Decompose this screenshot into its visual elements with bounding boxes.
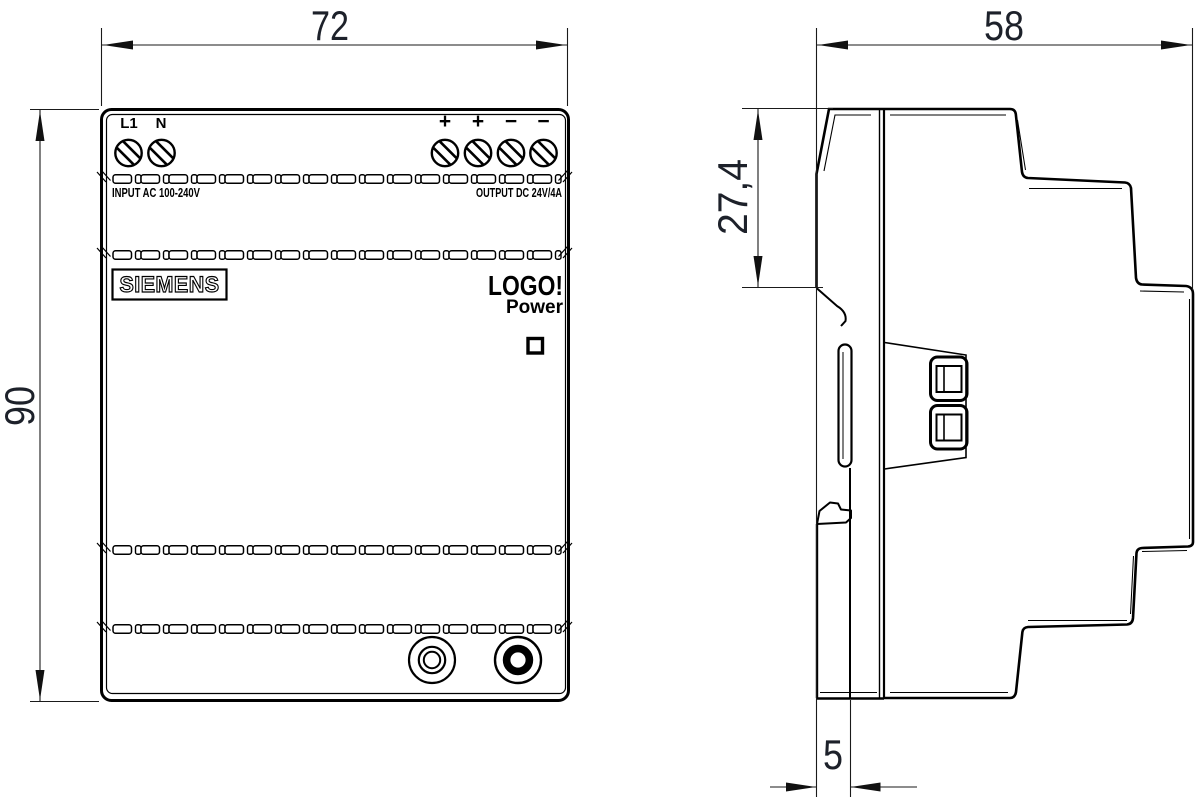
vent-slot <box>281 546 300 555</box>
socket-bore <box>507 649 530 672</box>
vent-slot-narrow <box>276 175 282 184</box>
vent-slot <box>449 251 468 260</box>
vent-slot-narrow <box>304 625 310 634</box>
potentiometer <box>409 637 455 683</box>
vent-slot <box>253 251 272 260</box>
screw-terminal-icon <box>148 140 174 166</box>
vent-slot <box>225 251 244 260</box>
din-rail-groove <box>839 345 852 467</box>
vent-slot-narrow <box>528 175 534 184</box>
vent-slot <box>421 625 440 634</box>
vent-slot-narrow <box>248 625 254 634</box>
siemens-logo: SIEMENS <box>113 270 227 300</box>
vent-slot-narrow <box>388 625 394 634</box>
side-view: 58 27,4 5 <box>709 2 1193 797</box>
output-rating-label: OUTPUT DC 24V/4A <box>476 186 562 200</box>
vent-slot-narrow <box>136 251 142 260</box>
terminal-label-n: N <box>156 115 167 132</box>
vent-slot-narrow <box>164 175 170 184</box>
vent-slot-narrow <box>472 546 478 555</box>
led-indicator <box>528 339 543 354</box>
vent-slot-narrow <box>332 625 338 634</box>
vent-slot-narrow <box>332 251 338 260</box>
vent-slot-narrow <box>192 546 198 555</box>
vent-slot-narrow <box>248 175 254 184</box>
vent-slot <box>169 175 188 184</box>
dim-side-depth <box>817 28 1193 797</box>
vent-slot-narrow <box>332 175 338 184</box>
vent-slot-narrow <box>164 251 170 260</box>
vent-slot-narrow <box>360 625 366 634</box>
vent-slot-narrow <box>136 546 142 555</box>
din-rail-latch <box>817 503 851 525</box>
vent-slot-narrow <box>500 625 506 634</box>
vent-slot <box>505 175 524 184</box>
vent-slot-narrow <box>360 175 366 184</box>
vent-slot-narrow <box>500 546 506 555</box>
vent-slot <box>141 175 160 184</box>
vent-slot-narrow <box>528 625 534 634</box>
vent-slot <box>309 175 328 184</box>
vent-slot-narrow <box>220 251 226 260</box>
vent-slot-narrow <box>276 251 282 260</box>
vent-slot <box>533 175 552 184</box>
vent-slot-narrow <box>164 546 170 555</box>
vent-slot <box>197 625 216 634</box>
vent-slot <box>365 251 384 260</box>
vent-slot <box>449 175 468 184</box>
vent-slot <box>281 175 300 184</box>
terminal-label-minus-2: − <box>537 110 549 133</box>
vent-slot <box>393 251 412 260</box>
vent-slot-narrow <box>220 625 226 634</box>
terminal-label-plus-2: + <box>472 110 484 133</box>
vent-slot-narrow <box>472 625 478 634</box>
vent-slot-narrow <box>276 625 282 634</box>
vent-slot <box>253 175 272 184</box>
vent-slot <box>365 175 384 184</box>
vent-slot <box>533 625 552 634</box>
front-body-inner-line <box>107 115 566 694</box>
vent-slot <box>337 175 356 184</box>
screw-terminals <box>115 140 556 166</box>
vent-slot <box>225 546 244 555</box>
vent-slot <box>505 625 524 634</box>
vent-slot <box>197 175 216 184</box>
socket-outer-ring <box>495 637 541 683</box>
vent-slot <box>253 546 272 555</box>
screw-terminal-icon <box>498 140 524 166</box>
screw-head <box>115 140 141 166</box>
vent-slot-narrow <box>192 625 198 634</box>
vent-slot <box>253 625 272 634</box>
vent-slot-narrow <box>220 546 226 555</box>
vent-slot-narrow <box>304 251 310 260</box>
vent-slot-narrow <box>388 251 394 260</box>
vent-slot <box>365 546 384 555</box>
vent-slot-narrow <box>248 251 254 260</box>
vent-slot <box>281 251 300 260</box>
vent-slot <box>309 625 328 634</box>
screw-terminal-icon <box>432 140 458 166</box>
vent-slot <box>281 625 300 634</box>
input-rating-label: INPUT AC 100-240V <box>112 186 200 200</box>
vent-slot-narrow <box>528 546 534 555</box>
dim-front-width-value: 72 <box>311 2 349 49</box>
vent-slot <box>197 251 216 260</box>
vent-slot-narrow <box>276 546 282 555</box>
vent-slot-narrow <box>248 546 254 555</box>
terminal-opening-1-inner <box>937 366 962 392</box>
vent-slot <box>169 546 188 555</box>
side-body-inner-lines <box>890 115 1190 693</box>
vent-slot-narrow <box>416 625 422 634</box>
dim-foot-depth <box>770 700 917 797</box>
vent-slot <box>365 625 384 634</box>
side-terminal-block <box>885 343 968 470</box>
vent-slot <box>141 625 160 634</box>
vent-slot-narrow <box>388 175 394 184</box>
din-rail-hook <box>817 288 846 326</box>
vent-slot-narrow <box>304 546 310 555</box>
dimension-drawing: L1 N + + − − INPUT AC 100-240V OUTPUT DC… <box>0 0 1200 800</box>
vent-slot-narrow <box>192 175 198 184</box>
vent-slot-narrow <box>444 175 450 184</box>
vent-slot-narrow <box>416 251 422 260</box>
terminal-opening-2-inner <box>937 415 962 441</box>
vent-slot <box>169 625 188 634</box>
dim-foot-depth-value: 5 <box>823 731 843 778</box>
product-line-label: Power <box>506 297 564 318</box>
screw-terminal-icon <box>465 140 491 166</box>
vent-slot <box>505 546 524 555</box>
dim-front-height-value: 90 <box>0 386 43 426</box>
vent-slot <box>477 546 496 555</box>
vent-slot-narrow <box>528 251 534 260</box>
vent-slot-narrow <box>192 251 198 260</box>
vent-slot-narrow <box>332 546 338 555</box>
dim-arrowhead <box>818 41 848 50</box>
din-flange-upper <box>817 109 885 288</box>
din-flange-upper-inner <box>824 115 871 171</box>
dim-arrowhead <box>36 111 45 141</box>
vent-slot <box>393 546 412 555</box>
vent-slot <box>505 251 524 260</box>
front-view: L1 N + + − − INPUT AC 100-240V OUTPUT DC… <box>0 2 572 702</box>
dim-arrowhead <box>36 670 45 700</box>
vent-slot <box>141 251 160 260</box>
vent-slot <box>337 625 356 634</box>
vent-slot <box>393 625 412 634</box>
vent-slot <box>113 175 132 184</box>
vent-slot <box>421 175 440 184</box>
vent-slot-narrow <box>220 175 226 184</box>
dim-arrowhead <box>786 783 816 792</box>
potentiometer-outer-ring <box>409 637 455 683</box>
vent-slot <box>421 546 440 555</box>
vent-slot-narrow <box>136 175 142 184</box>
vent-slot-narrow <box>388 546 394 555</box>
vent-slot-narrow <box>360 251 366 260</box>
vent-slot <box>141 546 160 555</box>
vent-slot-narrow <box>416 175 422 184</box>
dim-arrowhead <box>1161 41 1191 50</box>
vent-slot-narrow <box>444 251 450 260</box>
vent-slot-narrow <box>164 625 170 634</box>
vent-slot-narrow <box>500 251 506 260</box>
dim-arrowhead <box>754 256 763 286</box>
dimension-drawing-page: L1 N + + − − INPUT AC 100-240V OUTPUT DC… <box>0 0 1200 800</box>
output-socket <box>495 637 541 683</box>
vent-slot <box>337 251 356 260</box>
vent-slot <box>309 546 328 555</box>
vent-slot-narrow <box>444 625 450 634</box>
vent-slot-narrow <box>360 546 366 555</box>
vent-slot-narrow <box>472 175 478 184</box>
vent-slot <box>477 175 496 184</box>
vent-slot-narrow <box>136 625 142 634</box>
vent-slot <box>449 625 468 634</box>
vent-slot <box>169 251 188 260</box>
vent-slot <box>225 625 244 634</box>
dim-arrowhead <box>103 41 133 50</box>
terminal-label-l1: L1 <box>120 115 138 132</box>
vent-slot <box>197 546 216 555</box>
vent-slot-narrow <box>416 546 422 555</box>
vent-slot <box>533 251 552 260</box>
dim-arrowhead <box>536 41 566 50</box>
din-foot <box>816 468 884 699</box>
vent-slot <box>309 251 328 260</box>
vent-slot-narrow <box>304 175 310 184</box>
screw-head <box>530 140 556 166</box>
terminal-label-minus-1: − <box>505 110 517 133</box>
vent-slot <box>421 251 440 260</box>
potentiometer-adjuster <box>424 652 440 668</box>
vent-slot <box>337 546 356 555</box>
vent-slot <box>393 175 412 184</box>
vent-slot-narrow <box>500 175 506 184</box>
screw-terminal-icon <box>530 140 556 166</box>
vent-slot-narrow <box>444 546 450 555</box>
screw-head <box>148 140 174 166</box>
dim-upper-depth-value: 27,4 <box>709 159 756 235</box>
vent-slot-narrow <box>472 251 478 260</box>
vent-slot <box>449 546 468 555</box>
vent-slot <box>533 546 552 555</box>
screw-head <box>432 140 458 166</box>
vent-slot <box>113 625 132 634</box>
screw-head <box>498 140 524 166</box>
potentiometer-mid-ring <box>419 647 445 673</box>
dim-side-depth-value: 58 <box>984 2 1024 49</box>
dim-arrowhead <box>851 783 881 792</box>
screw-head <box>465 140 491 166</box>
screw-terminal-icon <box>115 140 141 166</box>
vent-slot <box>477 625 496 634</box>
dim-arrowhead <box>754 110 763 140</box>
vent-slot <box>477 251 496 260</box>
vent-slot <box>225 175 244 184</box>
side-body-outline <box>884 109 1193 698</box>
terminal-label-plus-1: + <box>439 110 451 133</box>
vent-slot <box>113 546 132 555</box>
ventilation-slots <box>97 171 572 634</box>
vent-slot <box>113 251 132 260</box>
siemens-logo-text: SIEMENS <box>120 272 220 297</box>
